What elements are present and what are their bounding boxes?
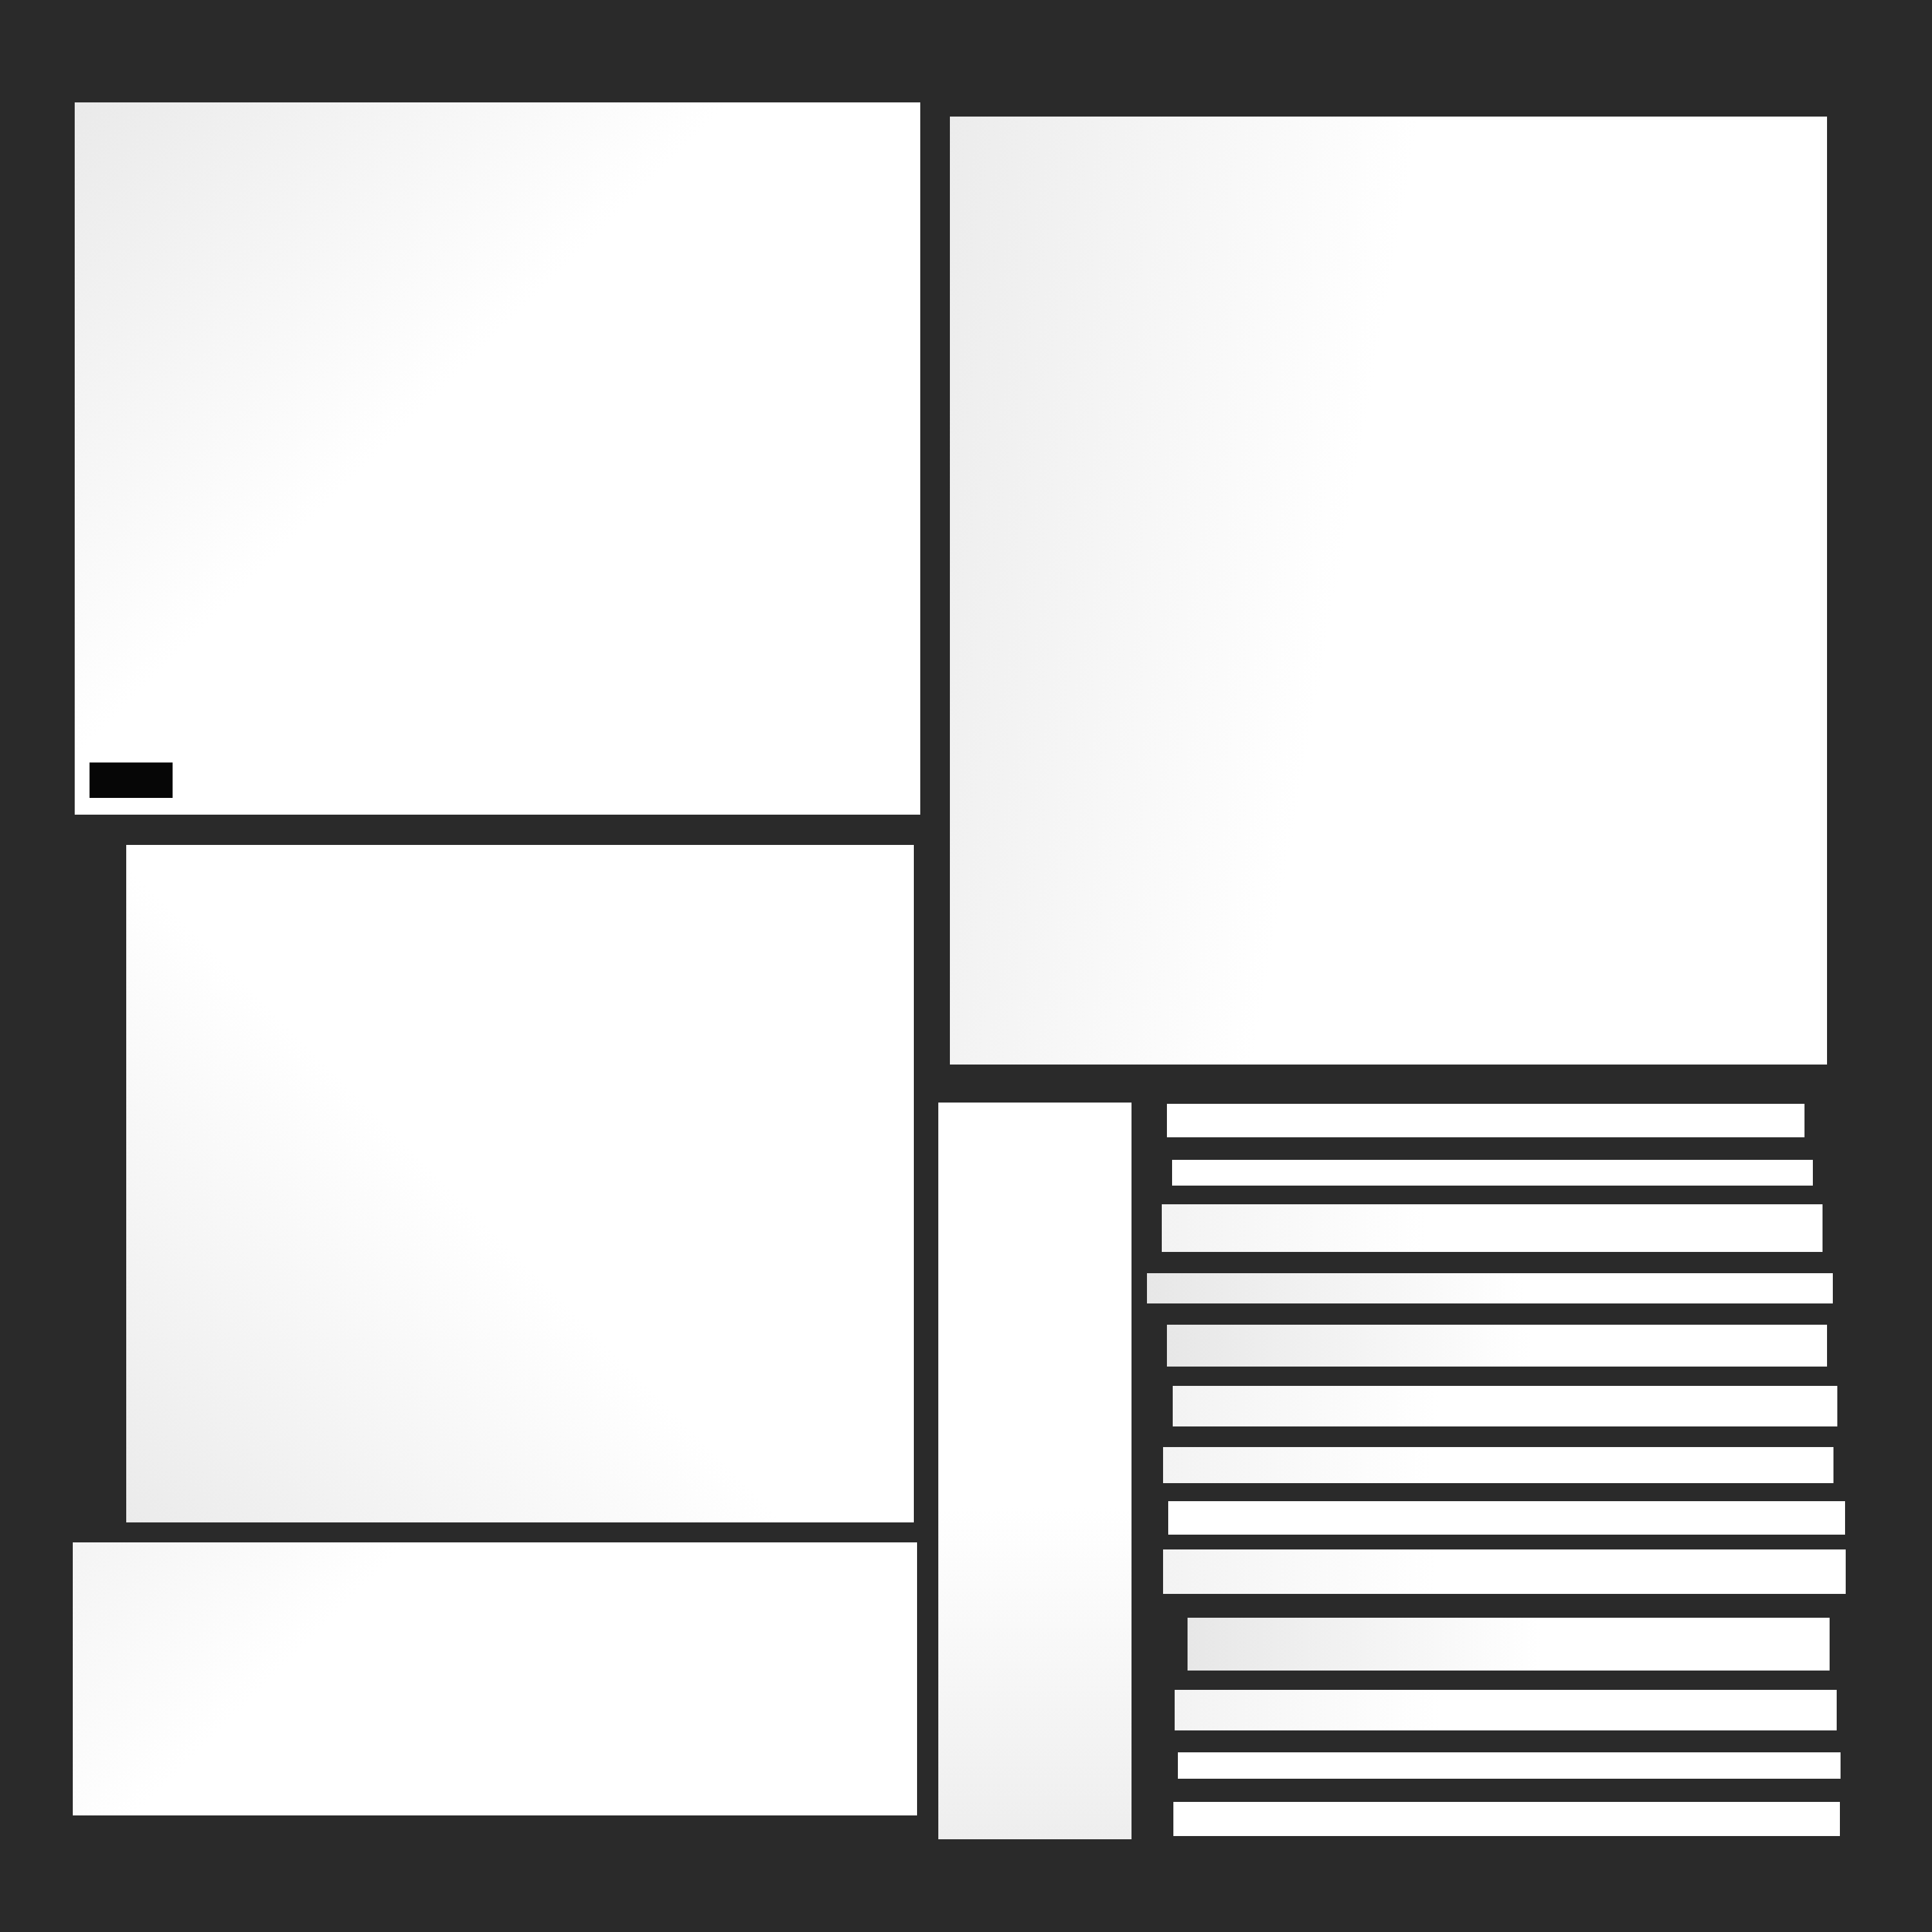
skeleton-line <box>1163 1447 1833 1483</box>
skeleton-line <box>1167 1325 1827 1367</box>
skeleton-line <box>1168 1501 1845 1535</box>
ink-block <box>90 762 173 798</box>
skeleton-line <box>1173 1386 1837 1426</box>
skeleton-line <box>1178 1752 1841 1779</box>
skeleton-line <box>1172 1160 1813 1186</box>
skeleton-line <box>1175 1690 1837 1730</box>
skeleton-line <box>1167 1104 1804 1137</box>
panel-middle-left <box>126 845 914 1522</box>
skeleton-line <box>1162 1204 1823 1252</box>
skeleton-line <box>1188 1618 1830 1671</box>
skeleton-line <box>1163 1549 1846 1594</box>
panel-top-left <box>75 102 920 815</box>
skeleton-line <box>1147 1273 1833 1303</box>
panel-bottom-left <box>73 1542 917 1815</box>
panel-top-right <box>950 117 1827 1065</box>
vertical-bar <box>938 1103 1132 1839</box>
canvas: { "canvas": { "width": 3000, "height": 3… <box>0 0 1932 1932</box>
skeleton-line <box>1173 1802 1840 1836</box>
